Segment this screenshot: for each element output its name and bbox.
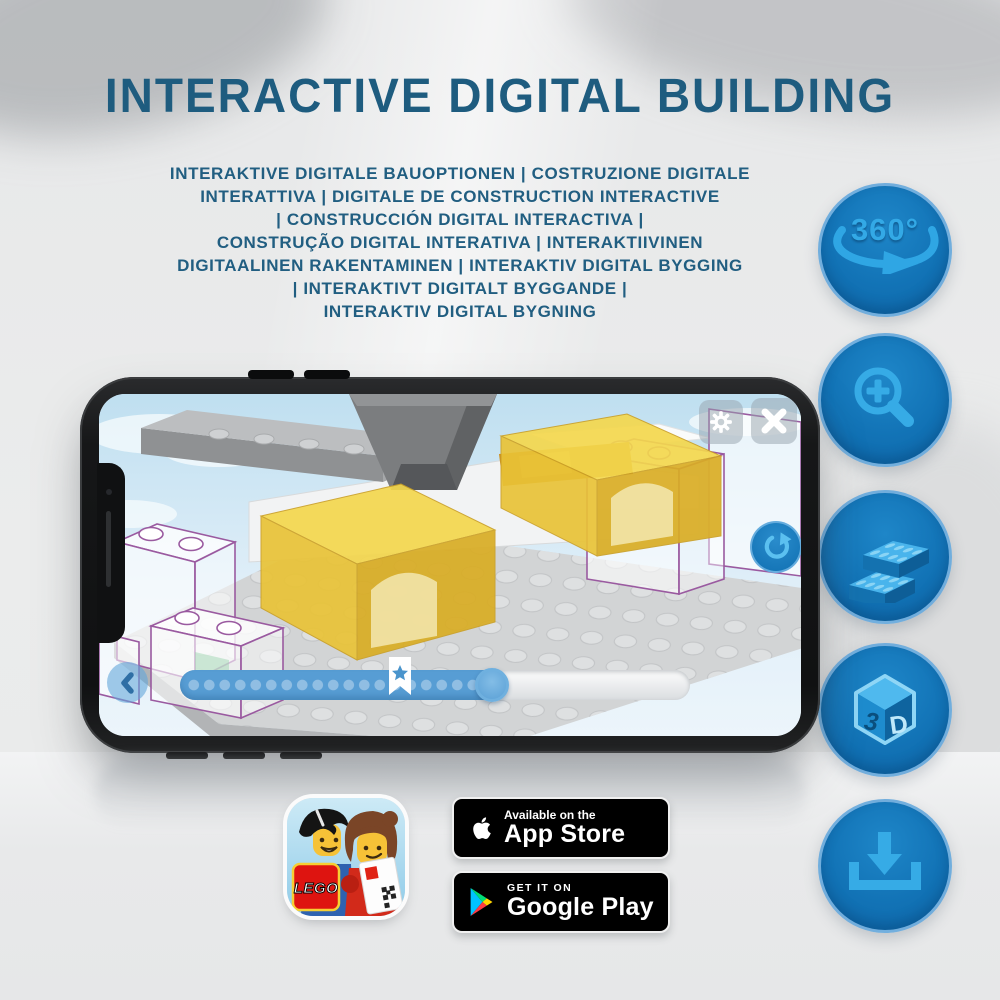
app-store-name: App Store — [504, 821, 625, 847]
lego-bricks-icon — [839, 511, 931, 603]
front-camera — [106, 489, 112, 495]
feature-3d-view: 3 D — [818, 643, 952, 777]
download-icon — [839, 820, 931, 912]
subtitle-line: CONSTRUÇÃO DIGITAL INTERATIVA | INTERAKT… — [90, 231, 830, 254]
lego-instructions-app-icon[interactable]: LEGO — [287, 798, 405, 916]
subtitle-line: | CONSTRUCCIÓN DIGITAL INTERACTIVA | — [90, 208, 830, 231]
page-title: INTERACTIVE DIGITAL BUILDING — [0, 67, 1000, 124]
rotate-icon — [759, 530, 793, 564]
poster: INTERACTIVE DIGITAL BUILDING INTERAKTIVE… — [0, 0, 1000, 1000]
3d-cube-icon: 3 D — [839, 664, 931, 756]
feature-360-rotation: 360° — [818, 183, 952, 317]
rotate-arrow-icon — [830, 226, 940, 274]
apple-logo-icon — [468, 813, 493, 843]
feature-download — [818, 799, 952, 933]
google-play-name: Google Play — [507, 894, 654, 920]
settings-button[interactable] — [699, 400, 743, 444]
rotate-view-button[interactable] — [750, 521, 801, 573]
phone-speaker-slot — [280, 752, 322, 759]
subtitle-line: INTERAKTIV DIGITAL BYGNING — [90, 300, 830, 323]
slider-handle[interactable] — [475, 668, 509, 702]
phone-mockup — [80, 377, 820, 753]
feature-zoom — [818, 333, 952, 467]
lego-app-artwork: LEGO — [287, 798, 405, 916]
close-button[interactable] — [751, 398, 797, 444]
subtitle-line: DIGITAALINEN RAKENTAMINEN | INTERAKTIV D… — [90, 254, 830, 277]
close-icon — [759, 406, 789, 436]
cube-letter-d: D — [888, 710, 910, 740]
phone-side-button — [304, 370, 350, 379]
phone-side-button — [248, 370, 294, 379]
build-progress-slider[interactable] — [180, 670, 690, 700]
chevron-left-icon — [118, 671, 138, 695]
phone-speaker-slot — [223, 752, 265, 759]
phone-speaker-slot — [166, 752, 208, 759]
phone-notch — [97, 463, 125, 643]
google-play-icon — [468, 886, 496, 918]
phone-reflection — [95, 758, 805, 828]
progress-fill — [180, 670, 500, 700]
feature-bricks — [818, 490, 952, 624]
bookmark-marker — [388, 656, 412, 701]
google-play-badge[interactable]: GET IT ON Google Play — [452, 871, 670, 933]
zoom-in-magnifier-icon — [840, 355, 930, 445]
subtitle-line: INTERATTIVA | DIGITALE DE CONSTRUCTION I… — [90, 185, 830, 208]
bookmark-star-icon — [388, 656, 412, 696]
earpiece-speaker — [106, 511, 111, 587]
subtitle-line: INTERAKTIVE DIGITALE BAUOPTIONEN | COSTR… — [90, 162, 830, 185]
multilingual-subtitle: INTERAKTIVE DIGITALE BAUOPTIONEN | COSTR… — [90, 162, 830, 323]
progress-step-dots — [186, 670, 496, 700]
gear-icon — [705, 406, 737, 438]
lego-logo-text: LEGO — [294, 880, 339, 897]
app-screen — [99, 394, 801, 736]
background-marble-streak — [820, 420, 1000, 840]
previous-step-button[interactable] — [107, 662, 148, 703]
subtitle-line: | INTERAKTIVT DIGITALT BYGGANDE | — [90, 277, 830, 300]
app-store-badge[interactable]: Available on the App Store — [452, 797, 670, 859]
